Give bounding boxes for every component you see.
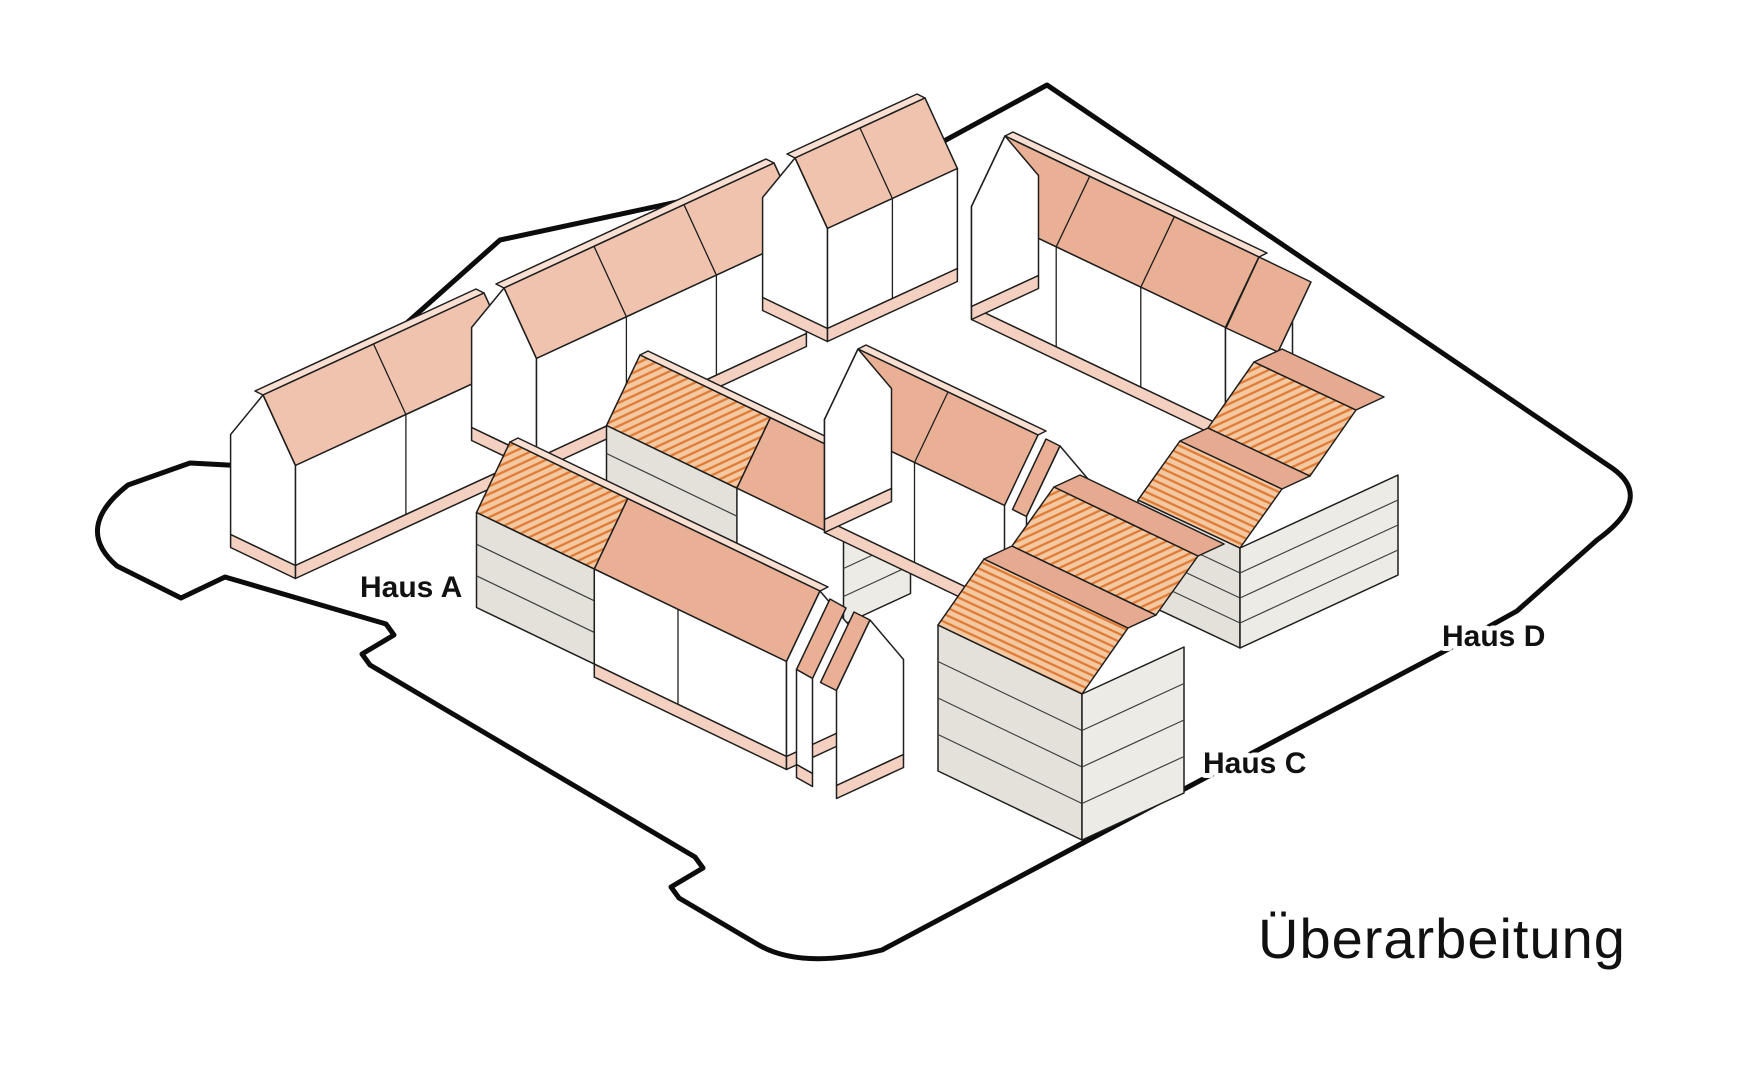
haus-d-label: Haus D: [1442, 620, 1545, 653]
haus-a-label: Haus A: [360, 571, 462, 604]
haus-c-label: Haus C: [1203, 747, 1306, 780]
drawing-title: Überarbeitung: [1258, 907, 1626, 970]
site-plan-canvas: Haus A Haus C Haus D Überarbeitung: [0, 0, 1753, 1080]
axonometric-site-diagram: Haus A Haus C Haus D Überarbeitung: [0, 0, 1753, 1080]
gabled-house: [763, 94, 958, 342]
